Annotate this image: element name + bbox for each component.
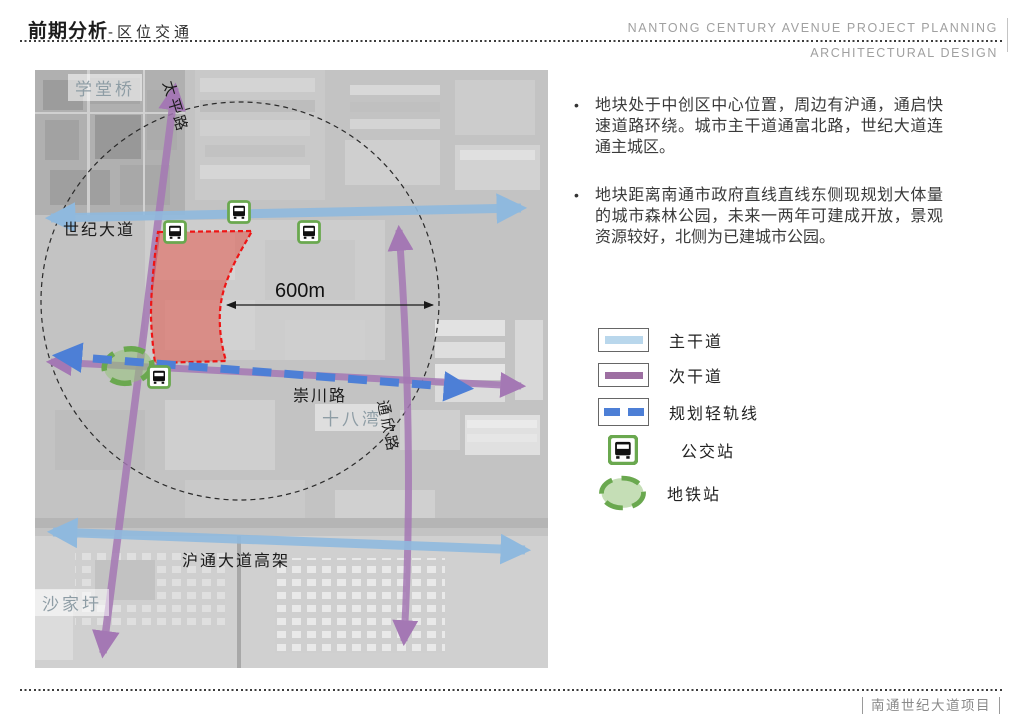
bus-station-icon (165, 222, 186, 243)
slide-page: 前期分析-区位交通 NANTONG CENTURY AVENUE PROJECT… (0, 0, 1024, 724)
project-name-en: NANTONG CENTURY AVENUE PROJECT PLANNING (628, 21, 998, 35)
legend-label: 公交站 (681, 438, 735, 462)
bus-station-icon (598, 435, 647, 465)
legend-item-metro-station: 地铁站 (598, 473, 898, 513)
site-location-map: 学堂桥 太平路 世纪大道 600m 崇川路 十八湾 通欣路 沪通大道高架 沙家圩 (35, 70, 548, 668)
footer-divider (20, 689, 1004, 691)
label-shiji-avenue: 世纪大道 (63, 216, 135, 240)
legend-label: 规划轻轨线 (669, 400, 759, 424)
legend-item-secondary-road: 次干道 (598, 363, 898, 387)
label-chongchuan-road: 崇川路 (293, 382, 347, 406)
page-title-bold: 前期分析 (28, 21, 108, 42)
page-title: 前期分析-区位交通 (28, 16, 193, 43)
main-road-swatch (598, 328, 649, 352)
label-hutong-elevated: 沪通大道高架 (182, 547, 290, 571)
note-text: 地块处于中创区中心位置，周边有沪通，通启快速道路环绕。城市主干道通富北路，世纪大… (595, 95, 943, 158)
footer-project-label: 南通世纪大道项目 (862, 697, 1000, 714)
legend-label: 地铁站 (667, 481, 721, 505)
label-shajiayu: 沙家圩 (35, 589, 109, 616)
header-edge-bar (1007, 18, 1008, 52)
legend-label: 主干道 (669, 328, 723, 352)
legend-label: 次干道 (669, 363, 723, 387)
bullet-dot: • (574, 95, 579, 116)
footer-project-name: 南通世纪大道项目 (862, 694, 1000, 714)
light-rail-swatch (598, 398, 649, 426)
metro-station-icon (598, 473, 647, 513)
bus-station-icon (229, 202, 250, 223)
label-xuetangqiao: 学堂桥 (68, 74, 142, 101)
note-item: • 地块距离南通市政府直线直线东侧现规划大体量的城市森林公园，未来一两年可建成开… (572, 185, 984, 248)
legend-item-bus-station: 公交站 (598, 435, 898, 465)
bullet-dot: • (574, 185, 579, 206)
bus-station-icon (299, 222, 320, 243)
note-item: • 地块处于中创区中心位置，周边有沪通，通启快速道路环绕。城市主干道通富北路，世… (572, 95, 984, 158)
header-subtitle-en: ARCHITECTURAL DESIGN (810, 46, 998, 60)
label-distance-600m: 600m (250, 280, 350, 303)
map-legend: 主干道 次干道 规划轻轨线 公交站 地铁站 (598, 328, 898, 524)
secondary-road-swatch (598, 363, 649, 387)
bus-station-icon (149, 367, 170, 388)
note-text: 地块距离南通市政府直线直线东侧现规划大体量的城市森林公园，未来一两年可建成开放，… (595, 185, 943, 248)
header-divider (20, 40, 1004, 42)
legend-item-light-rail: 规划轻轨线 (598, 398, 898, 426)
legend-item-main-road: 主干道 (598, 328, 898, 352)
page-title-rest: -区位交通 (108, 24, 193, 41)
satellite-map-canvas (35, 70, 548, 668)
